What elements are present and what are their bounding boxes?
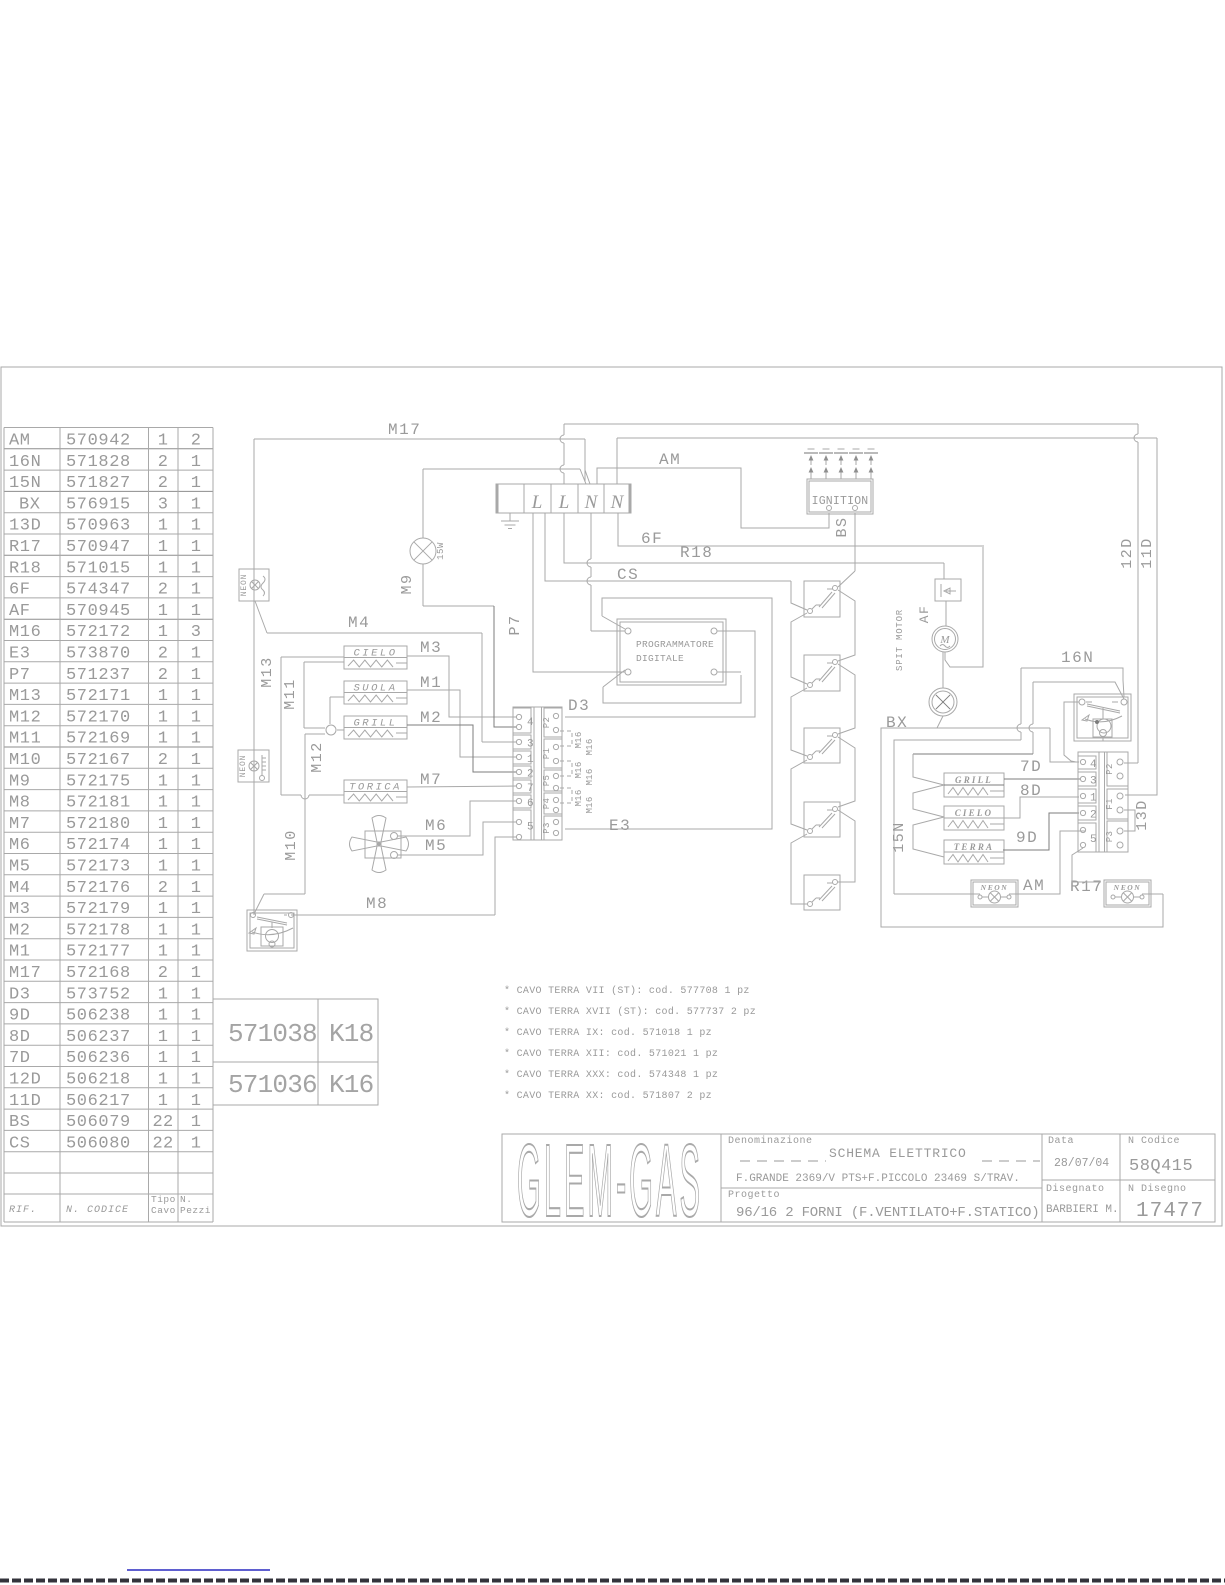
svg-text:N: N [584,492,599,513]
svg-text:22: 22 [152,1134,173,1153]
svg-text:AM: AM [1023,877,1045,895]
svg-text:M2: M2 [420,709,442,727]
svg-text:16N: 16N [1061,649,1094,667]
svg-text:1: 1 [158,602,169,621]
svg-text:1: 1 [191,645,202,664]
svg-text:M9: M9 [399,573,416,594]
svg-text:1: 1 [191,602,202,621]
svg-text:M4: M4 [348,614,370,632]
svg-text:CS: CS [617,566,639,584]
svg-text:572174: 572174 [66,836,131,855]
svg-text:2: 2 [1090,810,1097,822]
svg-text:K16: K16 [329,1070,373,1100]
svg-text:573752: 573752 [66,985,131,1004]
svg-text:P3: P3 [542,822,552,833]
svg-text:M6: M6 [9,836,31,855]
svg-text:1: 1 [1090,793,1097,805]
svg-text:572179: 572179 [66,900,131,919]
svg-text:1: 1 [158,708,169,727]
svg-text:2: 2 [527,769,534,781]
svg-text:2: 2 [158,964,169,983]
svg-text:BS: BS [9,1113,31,1132]
svg-text:571828: 571828 [66,453,131,472]
svg-text:506236: 506236 [66,1049,131,1068]
svg-text:E3: E3 [9,645,31,664]
svg-text:3: 3 [527,739,534,751]
svg-text:P4: P4 [542,798,552,809]
svg-text:SUOLA: SUOLA [353,683,397,695]
svg-text:570947: 570947 [66,538,131,557]
svg-text:6F: 6F [641,530,663,548]
svg-text:1: 1 [191,581,202,600]
svg-text:P3: P3 [1105,831,1115,842]
svg-text:506237: 506237 [66,1028,131,1047]
svg-text:R17: R17 [1070,878,1103,896]
svg-text:1: 1 [158,730,169,749]
svg-text:IGNITION: IGNITION [812,495,869,508]
svg-text:572180: 572180 [66,815,131,834]
svg-text:506080: 506080 [66,1134,131,1153]
svg-text:4: 4 [527,717,534,729]
svg-text:N Disegno: N Disegno [1128,1183,1187,1195]
svg-text:12D: 12D [9,1071,41,1090]
svg-text:1: 1 [158,815,169,834]
svg-text:P2: P2 [1105,763,1115,774]
svg-text:M17: M17 [9,964,41,983]
svg-text:1: 1 [191,1134,202,1153]
svg-text:572168: 572168 [66,964,131,983]
svg-text:P7: P7 [507,614,524,635]
svg-text:SCHEMA ELETTRICO: SCHEMA ELETTRICO [829,1146,967,1161]
svg-text:N.: N. [180,1194,192,1205]
svg-text:506218: 506218 [66,1071,131,1090]
svg-text:M10: M10 [9,751,41,770]
svg-text:M10: M10 [283,829,300,861]
svg-text:571237: 571237 [66,666,131,685]
svg-text:* CAVO TERRA VII (ST): cod. 57: * CAVO TERRA VII (ST): cod. 577708 1 pz [504,985,750,997]
svg-text:571827: 571827 [66,474,131,493]
svg-text:1: 1 [158,687,169,706]
svg-text:573870: 573870 [66,645,131,664]
svg-text:1: 1 [191,943,202,962]
svg-text:* CAVO TERRA XVII (ST): cod. 5: * CAVO TERRA XVII (ST): cod. 577737 2 pz [504,1006,756,1018]
svg-text:AM: AM [659,451,681,469]
svg-text:11D: 11D [1139,537,1156,569]
svg-text:96/16 2 FORNI (F.VENTILATO+F.S: 96/16 2 FORNI (F.VENTILATO+F.STATICO) [736,1205,1039,1221]
svg-text:572170: 572170 [66,708,131,727]
svg-text:Denominazione: Denominazione [728,1135,813,1147]
svg-text:GLEM-GAS: GLEM-GAS [517,1123,703,1239]
svg-text:15N: 15N [891,821,908,853]
svg-text:9D: 9D [1016,829,1038,847]
svg-text:M17: M17 [388,421,421,439]
svg-text:1: 1 [158,432,169,451]
svg-text:1: 1 [191,453,202,472]
svg-text:M13: M13 [9,687,41,706]
svg-text:BX: BX [19,495,41,514]
svg-text:E3: E3 [609,817,631,835]
svg-text:3: 3 [158,495,169,514]
svg-text:M5: M5 [425,837,447,855]
svg-text:M6: M6 [425,817,447,835]
svg-text:1: 1 [191,666,202,685]
svg-text:N. CODICE: N. CODICE [66,1205,129,1216]
svg-text:P1: P1 [542,748,552,759]
svg-text:1: 1 [191,1071,202,1090]
svg-text:7D: 7D [9,1049,31,1068]
svg-text:1: 1 [191,772,202,791]
svg-text:1: 1 [191,836,202,855]
svg-text:6F: 6F [9,581,31,600]
svg-text:1: 1 [191,794,202,813]
svg-text:8D: 8D [9,1028,31,1047]
svg-text:RIF.: RIF. [9,1205,37,1216]
svg-text:* CAVO TERRA XII: cod. 571021: * CAVO TERRA XII: cod. 571021 1 pz [504,1048,718,1060]
svg-text:572178: 572178 [66,921,131,940]
svg-text:3: 3 [191,623,202,642]
svg-text:2: 2 [158,474,169,493]
svg-text:1: 1 [191,517,202,536]
svg-text:1: 1 [191,1049,202,1068]
svg-text:M16: M16 [574,731,584,748]
svg-text:TERRA: TERRA [954,842,995,852]
svg-text:1: 1 [158,772,169,791]
svg-text:572171: 572171 [66,687,131,706]
svg-text:M: M [939,634,950,646]
svg-text:1: 1 [158,1092,169,1111]
svg-text:AF: AF [917,605,932,624]
svg-text:58Q415: 58Q415 [1129,1157,1193,1176]
svg-text:CS: CS [9,1134,31,1153]
svg-text:2: 2 [158,453,169,472]
svg-text:1: 1 [158,1071,169,1090]
svg-text:BARBIERI M.: BARBIERI M. [1046,1204,1119,1216]
svg-text:BS: BS [834,516,851,537]
svg-text:Cavo: Cavo [151,1205,176,1216]
svg-text:M12: M12 [309,741,326,773]
svg-text:CIELO: CIELO [353,648,397,660]
svg-text:M16: M16 [574,761,584,778]
svg-text:N Codice: N Codice [1128,1135,1180,1147]
svg-text:1: 1 [191,964,202,983]
svg-text:F1: F1 [1105,798,1115,809]
svg-text:572173: 572173 [66,858,131,877]
svg-text:571015: 571015 [66,559,131,578]
svg-text:M8: M8 [366,895,388,913]
svg-text:22: 22 [152,1113,173,1132]
svg-text:28/07/04: 28/07/04 [1054,1157,1109,1170]
svg-text:M5: M5 [9,858,31,877]
svg-text:1: 1 [158,538,169,557]
svg-text:M16: M16 [574,789,584,806]
svg-text:572177: 572177 [66,943,131,962]
svg-text:M1: M1 [9,943,31,962]
svg-text:2: 2 [158,879,169,898]
svg-text:1: 1 [191,879,202,898]
svg-text:1: 1 [158,921,169,940]
svg-text:M2: M2 [9,921,31,940]
svg-text:1: 1 [191,730,202,749]
svg-text:1: 1 [191,687,202,706]
svg-text:CIELO: CIELO [955,808,994,818]
svg-text:7D: 7D [1020,758,1042,776]
svg-text:1: 1 [191,1113,202,1132]
svg-text:PROGRAMMATORE: PROGRAMMATORE [636,639,714,650]
svg-text:7: 7 [527,783,534,795]
svg-text:GRILL: GRILL [353,718,397,730]
svg-text:Data: Data [1048,1136,1074,1147]
svg-text:570942: 570942 [66,432,131,451]
svg-text:M9: M9 [9,772,31,791]
svg-text:11D: 11D [9,1092,41,1111]
svg-text:3: 3 [1090,776,1097,788]
svg-text:1: 1 [158,1028,169,1047]
svg-text:AM: AM [9,432,31,451]
svg-text:1: 1 [158,1049,169,1068]
svg-text:572181: 572181 [66,794,131,813]
svg-text:M8: M8 [9,794,31,813]
svg-text:1: 1 [191,815,202,834]
svg-text:2: 2 [191,432,202,451]
svg-text:M11: M11 [9,730,41,749]
svg-text:M3: M3 [420,639,442,657]
svg-text:576915: 576915 [66,495,131,514]
svg-text:1: 1 [191,921,202,940]
svg-text:506217: 506217 [66,1092,131,1111]
svg-text:AF: AF [9,602,31,621]
svg-text:K18: K18 [329,1019,373,1049]
svg-text:9D: 9D [9,1007,31,1026]
svg-text:1: 1 [191,474,202,493]
svg-text:TORICA: TORICA [349,782,402,794]
svg-text:1: 1 [191,495,202,514]
svg-text:1: 1 [158,943,169,962]
svg-text:17477: 17477 [1136,1200,1204,1223]
svg-text:570963: 570963 [66,517,131,536]
svg-text:8D: 8D [1020,782,1042,800]
svg-text:1: 1 [158,836,169,855]
svg-text:572176: 572176 [66,879,131,898]
svg-text:1: 1 [191,708,202,727]
svg-text:R18: R18 [9,559,41,578]
svg-text:13D: 13D [1134,799,1151,831]
svg-text:Pezzi: Pezzi [180,1205,211,1216]
svg-text:571036: 571036 [228,1070,317,1100]
svg-text:SPIT MOTOR: SPIT MOTOR [895,609,905,671]
svg-text:BX: BX [886,714,908,732]
svg-text:1: 1 [158,858,169,877]
svg-text:M11: M11 [282,678,299,710]
svg-text:P5: P5 [542,775,552,786]
svg-text:572175: 572175 [66,772,131,791]
svg-text:P7: P7 [9,666,31,685]
svg-text:2: 2 [158,751,169,770]
svg-text:5: 5 [527,822,534,834]
svg-text:1: 1 [191,900,202,919]
svg-text:506238: 506238 [66,1007,131,1026]
svg-text:GRILL: GRILL [955,775,993,785]
svg-text:M7: M7 [9,815,31,834]
svg-text:2: 2 [158,645,169,664]
svg-text:16N: 16N [9,453,41,472]
svg-text:5: 5 [1090,834,1097,846]
svg-text:M16: M16 [9,623,41,642]
svg-text:M3: M3 [9,900,31,919]
svg-text:M16: M16 [585,738,595,755]
svg-text:572169: 572169 [66,730,131,749]
svg-text:M4: M4 [9,879,31,898]
svg-text:M12: M12 [9,708,41,727]
svg-text:NEON: NEON [240,574,249,596]
svg-text:1: 1 [191,858,202,877]
svg-text:M16: M16 [585,768,595,785]
svg-text:1: 1 [191,538,202,557]
svg-text:P2: P2 [542,717,552,728]
svg-text:DIGITALE: DIGITALE [636,653,684,664]
svg-text:* CAVO TERRA XX: cod. 571807 2: * CAVO TERRA XX: cod. 571807 2 pz [504,1090,712,1102]
svg-text:R17: R17 [9,538,41,557]
svg-text:D3: D3 [568,697,590,715]
svg-text:15W: 15W [436,542,446,560]
svg-text:506079: 506079 [66,1113,131,1132]
svg-text:M13: M13 [259,656,276,688]
svg-text:1: 1 [191,1028,202,1047]
svg-text:* CAVO TERRA XXX: cod. 574348: * CAVO TERRA XXX: cod. 574348 1 pz [504,1069,718,1081]
svg-text:M16: M16 [585,796,595,813]
svg-text:1: 1 [158,985,169,1004]
svg-text:N: N [610,492,625,513]
svg-text:13D: 13D [9,517,41,536]
svg-text:1: 1 [158,1007,169,1026]
svg-text:572167: 572167 [66,751,131,770]
svg-text:2: 2 [158,666,169,685]
svg-text:L: L [558,492,570,513]
svg-text:Progetto: Progetto [728,1190,780,1201]
svg-text:F.GRANDE 2369/V PTS+F.PICCOLO: F.GRANDE 2369/V PTS+F.PICCOLO 23469 S/TR… [736,1173,1020,1185]
svg-text:570945: 570945 [66,602,131,621]
svg-text:1: 1 [158,559,169,578]
svg-text:2: 2 [158,581,169,600]
svg-text:1: 1 [191,985,202,1004]
svg-text:1: 1 [191,751,202,770]
svg-text:* CAVO TERRA IX: cod. 571018 1: * CAVO TERRA IX: cod. 571018 1 pz [504,1027,712,1039]
svg-text:12D: 12D [1119,537,1136,569]
svg-text:1: 1 [191,1007,202,1026]
svg-text:571038: 571038 [228,1019,317,1049]
svg-text:572172: 572172 [66,623,131,642]
svg-text:4: 4 [1090,759,1097,771]
svg-text:1: 1 [158,517,169,536]
svg-text:6: 6 [527,798,534,810]
svg-text:1: 1 [158,623,169,642]
svg-text:M1: M1 [420,674,442,692]
svg-text:NEON: NEON [239,755,248,777]
svg-text:1: 1 [527,754,534,766]
svg-text:574347: 574347 [66,581,131,600]
svg-text:1: 1 [191,559,202,578]
svg-text:1: 1 [158,794,169,813]
svg-text:Tipo: Tipo [151,1194,176,1205]
svg-text:1: 1 [191,1092,202,1111]
svg-text:1: 1 [158,900,169,919]
svg-text:L: L [531,492,543,513]
svg-text:R18: R18 [680,544,713,562]
svg-text:D3: D3 [9,985,31,1004]
svg-text:Disegnato: Disegnato [1046,1183,1105,1195]
svg-text:15N: 15N [9,474,41,493]
